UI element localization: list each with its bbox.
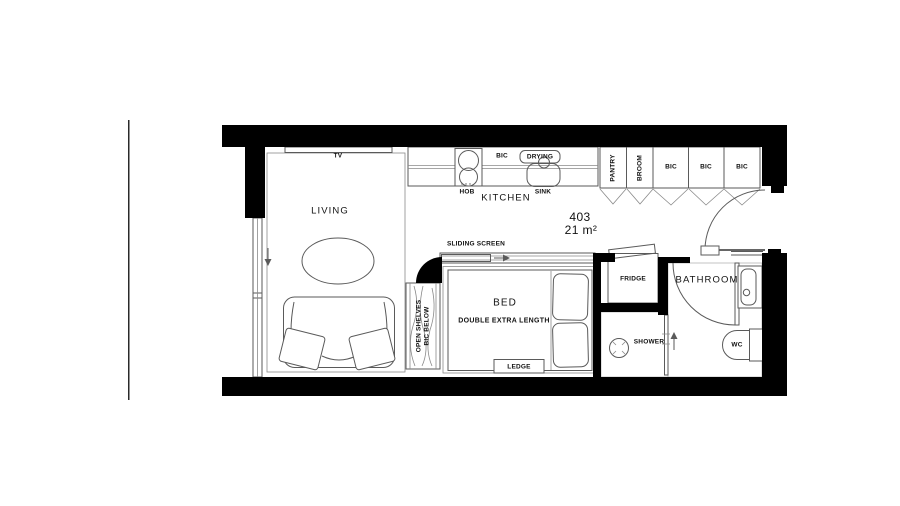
living-window — [253, 218, 262, 377]
floor-plan-canvas: TV LIVING HOB BIC DRYING SINK KITCHEN 40… — [0, 0, 900, 506]
sofa — [278, 297, 395, 370]
entrance-door — [705, 190, 765, 255]
fridge-label: FRIDGE — [620, 276, 646, 283]
open-shelves-label-line2: BIC BELOW — [423, 300, 431, 353]
sofa-cushion-left — [278, 328, 325, 371]
bic-closet-2-label: BIC — [700, 164, 712, 171]
wc-label: WC — [731, 342, 742, 349]
coffee-table — [302, 238, 374, 284]
drying-label: DRYING — [527, 154, 553, 161]
shower-label: SHOWER — [634, 339, 664, 346]
living-room-label: LIVING — [311, 206, 349, 217]
unit-number: 403 — [569, 210, 590, 224]
bathroom-label: BATHROOM — [676, 275, 739, 286]
open-shelves-label: OPEN SHELVES BIC BELOW — [416, 300, 431, 353]
floor-plan-drawing — [0, 0, 900, 506]
bed-pillow-top — [552, 274, 588, 321]
bic-closet-1-label: BIC — [665, 164, 677, 171]
pantry-label: PANTRY — [610, 154, 617, 181]
balcony-edge-line — [128, 120, 130, 400]
broom-label: BROOM — [637, 155, 644, 181]
ledge-label: LEDGE — [507, 363, 530, 370]
bic-closet-3-label: BIC — [736, 164, 748, 171]
sliding-screen-track — [440, 253, 595, 263]
sofa-cushion-right — [348, 328, 395, 371]
sliding-screen-label: SLIDING SCREEN — [447, 240, 505, 247]
unit-area: 21 m² — [565, 223, 598, 237]
rounded-wall-corner — [416, 257, 442, 283]
bathroom-vanity — [738, 266, 762, 308]
bed-subtitle-label: DOUBLE EXTRA LENGTH — [458, 318, 549, 325]
fridge — [608, 244, 658, 303]
window-swing-arrow — [265, 248, 272, 266]
cabinet-row — [600, 147, 760, 205]
tv-label: TV — [334, 153, 343, 160]
sink-label: SINK — [535, 189, 551, 196]
shower-drain — [610, 339, 629, 358]
kitchen-label: KITCHEN — [481, 193, 530, 204]
hob-label: HOB — [459, 189, 474, 196]
bed-label: BED — [493, 298, 517, 309]
bic-counter-label: BIC — [496, 153, 508, 160]
hob — [455, 149, 482, 187]
open-shelves-label-line1: OPEN SHELVES — [416, 300, 424, 353]
shower-entry-arrow — [671, 332, 678, 350]
bed-pillow-bottom — [552, 323, 588, 368]
